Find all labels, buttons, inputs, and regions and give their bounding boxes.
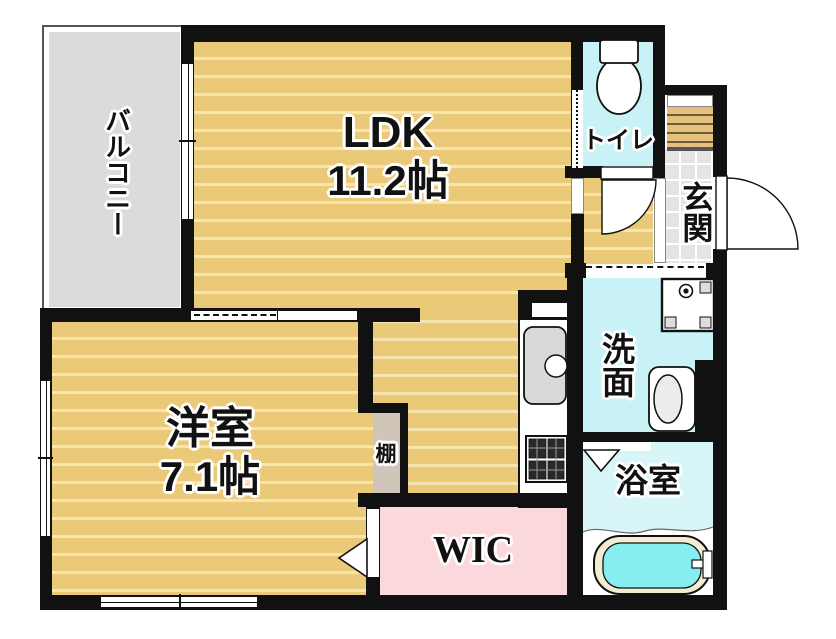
wall-segment	[665, 85, 727, 95]
floor-plan: バルコニー LDK 11.2帖 洋室 7.1帖 トイレ 玄関 洗面 浴室 WIC…	[0, 0, 836, 639]
western-room-label: 洋室	[166, 404, 254, 453]
wall-segment	[181, 25, 194, 63]
entrance-label: 玄関	[676, 174, 712, 250]
doorway-opening	[367, 509, 379, 577]
window	[181, 63, 194, 220]
hallway	[584, 178, 653, 266]
wall-segment	[571, 214, 584, 263]
shelf-label: 棚	[371, 441, 401, 469]
wall-segment	[583, 432, 713, 442]
ldk-size-label: 11.2帖	[327, 157, 448, 204]
doorway-opening	[583, 442, 651, 451]
wall-segment	[400, 413, 408, 497]
wall-segment	[695, 360, 718, 440]
entrance-steps	[667, 107, 713, 151]
western-room-size-label: 7.1帖	[160, 453, 260, 500]
entrance-vent-window	[667, 95, 713, 107]
entrance-door-arc	[716, 176, 798, 250]
western-room-label-block: 洋室 7.1帖	[90, 392, 330, 512]
bathroom-label: 浴室	[600, 462, 696, 500]
sliding-door	[190, 310, 358, 321]
wall-segment	[181, 220, 194, 312]
doorway-opening	[654, 178, 666, 263]
wic-label: WIC	[420, 528, 526, 572]
wall-segment	[706, 263, 727, 278]
toilet-label: トイレ	[580, 126, 656, 156]
wall-segment	[567, 263, 583, 597]
wall-segment	[181, 25, 665, 42]
wall-segment	[518, 290, 531, 318]
kitchen-cabinet	[531, 302, 569, 318]
doorway-track	[571, 178, 584, 214]
sliding-door	[586, 264, 706, 277]
kitchen-counter	[518, 318, 569, 508]
wall-segment	[358, 403, 408, 413]
ldk-label-block: LDK 11.2帖	[268, 96, 508, 216]
wall-segment	[358, 493, 583, 507]
wall-segment	[358, 308, 373, 413]
washroom-label: 洗面	[596, 326, 634, 404]
doorway-opening	[713, 177, 727, 249]
wall-segment	[713, 95, 727, 177]
balcony-label: バルコニー	[88, 92, 144, 252]
ldk-label: LDK	[343, 108, 433, 157]
wall-segment	[565, 166, 603, 178]
window	[40, 380, 51, 537]
window	[100, 596, 258, 608]
